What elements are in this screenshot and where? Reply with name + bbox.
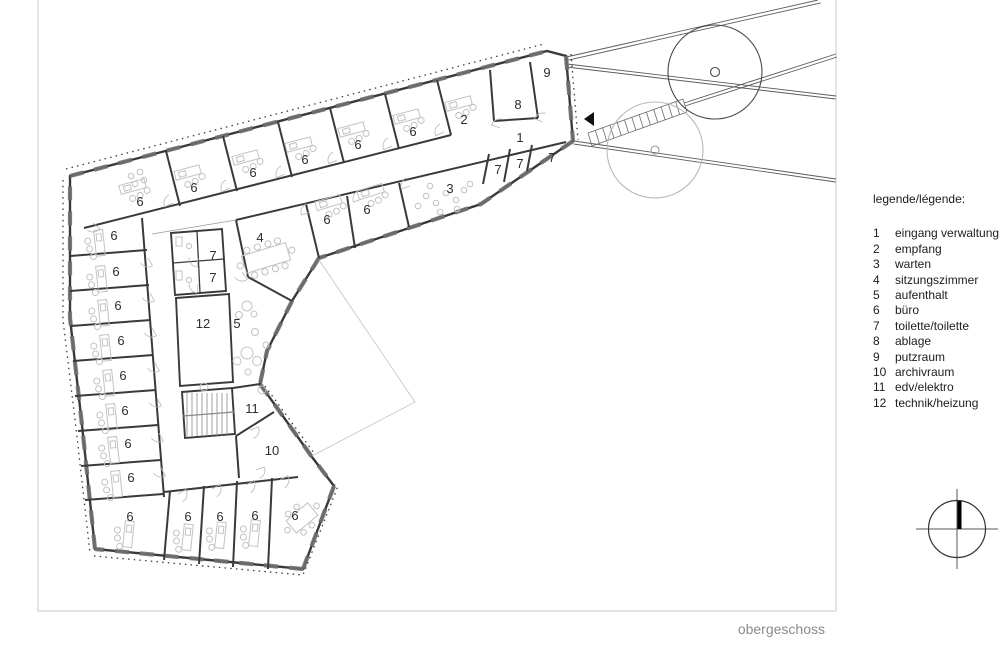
legend-item-label: sitzungszimmer	[895, 273, 978, 288]
room-label-3: 3	[446, 181, 453, 196]
floor-plan-drawing: 666666289177736647712511106666666666666	[0, 0, 1000, 649]
legend-item-number: 9	[873, 350, 895, 365]
room-label-6: 6	[216, 509, 223, 524]
legend-item-number: 10	[873, 365, 895, 380]
room-label-1: 1	[516, 130, 523, 145]
room-label-12: 12	[196, 316, 210, 331]
room-label-6: 6	[121, 403, 128, 418]
building	[63, 44, 578, 575]
room-label-6: 6	[354, 137, 361, 152]
room-label-7: 7	[516, 156, 523, 171]
legend-item-5: 5aufenthalt	[873, 288, 999, 303]
room-label-6: 6	[114, 298, 121, 313]
legend-item-1: 1eingang verwaltung	[873, 226, 999, 241]
room-label-7: 7	[494, 162, 501, 177]
legend-item-number: 6	[873, 303, 895, 318]
room-label-6: 6	[363, 202, 370, 217]
legend-item-10: 10archivraum	[873, 365, 999, 380]
legend-item-8: 8ablage	[873, 334, 999, 349]
legend-item-9: 9putzraum	[873, 350, 999, 365]
room-label-6: 6	[184, 509, 191, 524]
north-arrow-icon	[916, 489, 998, 569]
legend-item-number: 12	[873, 396, 895, 411]
room-label-6: 6	[249, 165, 256, 180]
room-label-6: 6	[124, 436, 131, 451]
legend-item-label: aufenthalt	[895, 288, 948, 303]
room-label-6: 6	[119, 368, 126, 383]
room-label-6: 6	[112, 264, 119, 279]
room-label-6: 6	[136, 194, 143, 209]
room-label-2: 2	[460, 112, 467, 127]
building-outline	[70, 51, 573, 569]
room-label-9: 9	[543, 65, 550, 80]
legend-item-label: büro	[895, 303, 919, 318]
tree-icon	[668, 25, 762, 119]
legend-items: 1eingang verwaltung2empfang3warten4sitzu…	[873, 226, 999, 411]
legend-item-label: empfang	[895, 242, 942, 257]
legend: legende/légende: 1eingang verwaltung2emp…	[873, 192, 999, 411]
legend-title: legende/légende:	[873, 192, 999, 207]
room-label-6: 6	[117, 333, 124, 348]
legend-item-label: warten	[895, 257, 931, 272]
room-label-6: 6	[190, 180, 197, 195]
legend-item-label: archivraum	[895, 365, 954, 380]
room-label-10: 10	[265, 443, 279, 458]
room-label-6: 6	[323, 212, 330, 227]
legend-item-4: 4sitzungszimmer	[873, 273, 999, 288]
legend-item-label: ablage	[895, 334, 931, 349]
legend-item-number: 4	[873, 273, 895, 288]
entrance-arrow-icon	[584, 112, 594, 126]
legend-item-number: 3	[873, 257, 895, 272]
room-label-6: 6	[126, 509, 133, 524]
legend-item-label: technik/heizung	[895, 396, 978, 411]
room-label-6: 6	[301, 152, 308, 167]
tree-icon	[607, 102, 703, 198]
legend-item-3: 3warten	[873, 257, 999, 272]
legend-item-number: 1	[873, 226, 895, 241]
legend-item-2: 2empfang	[873, 242, 999, 257]
room-label-4: 4	[256, 230, 263, 245]
legend-item-12: 12technik/heizung	[873, 396, 999, 411]
room-label-6: 6	[251, 508, 258, 523]
sheet-title: obergeschoss	[38, 621, 825, 637]
legend-item-number: 2	[873, 242, 895, 257]
legend-item-number: 7	[873, 319, 895, 334]
legend-item-label: edv/elektro	[895, 380, 954, 395]
room-label-5: 5	[233, 316, 240, 331]
room-label-6: 6	[127, 470, 134, 485]
outdoor-stairs	[588, 99, 687, 146]
legend-item-number: 11	[873, 380, 895, 395]
room-label-8: 8	[514, 97, 521, 112]
legend-item-11: 11edv/elektro	[873, 380, 999, 395]
room-label-7: 7	[548, 150, 555, 165]
legend-item-label: toilette/toilette	[895, 319, 969, 334]
legend-item-number: 8	[873, 334, 895, 349]
legend-item-6: 6büro	[873, 303, 999, 318]
room-label-7: 7	[209, 270, 216, 285]
room-label-7: 7	[209, 248, 216, 263]
room-label-6: 6	[291, 508, 298, 523]
legend-item-label: putzraum	[895, 350, 945, 365]
room-label-11: 11	[245, 401, 259, 416]
room-label-6: 6	[409, 124, 416, 139]
legend-item-7: 7toilette/toilette	[873, 319, 999, 334]
room-label-6: 6	[110, 228, 117, 243]
legend-item-label: eingang verwaltung	[895, 226, 999, 241]
legend-item-number: 5	[873, 288, 895, 303]
